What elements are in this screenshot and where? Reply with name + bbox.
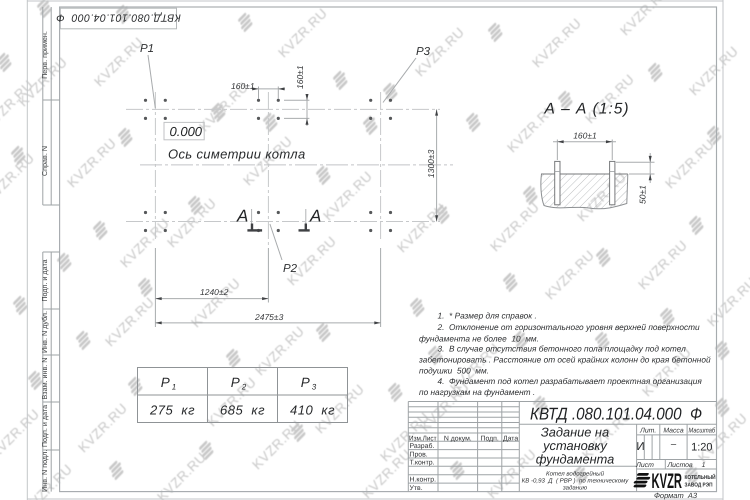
svg-text:по нагрузкам на фундамент .: по нагрузкам на фундамент . [419,387,535,397]
svg-text:ЗАВОД РЭП: ЗАВОД РЭП [685,483,713,489]
svg-text:Изм.Лист: Изм.Лист [409,435,437,442]
svg-text:KVZR.RU: KVZR.RU [102,294,157,349]
svg-text:KVZR.RU: KVZR.RU [284,233,339,288]
svg-text:KVZR.RU: KVZR.RU [91,34,146,89]
svg-text:KVZR.RU: KVZR.RU [704,274,750,329]
svg-text:Справ. N: Справ. N [40,146,49,176]
svg-text:160±1: 160±1 [573,131,597,141]
svg-text:P1: P1 [140,43,154,55]
svg-text:KVZR.RU: KVZR.RU [275,5,330,60]
svg-text:KVZR: KVZR [652,470,683,493]
svg-text:Т.контр.: Т.контр. [410,460,435,467]
svg-text:А: А [236,207,248,226]
svg-text:KVZR.RU: KVZR.RU [617,0,672,38]
svg-text:Инв. N дубл.: Инв. N дубл. [40,311,49,353]
svg-text:1300±3: 1300±3 [426,149,436,178]
svg-text:KVZR.RU: KVZR.RU [0,77,36,132]
svg-text:Перв. примен.: Перв. примен. [40,31,49,79]
svg-text:KVZR.RU: KVZR.RU [154,449,209,500]
svg-text:Взам. инв. N: Взам. инв. N [40,357,49,399]
svg-text:фундамента: фундамента [536,452,615,467]
svg-text:КВТД .080.101.04.000 Ф: КВТД .080.101.04.000 Ф [530,405,702,424]
svg-text:50±1: 50±1 [638,185,648,204]
svg-text:Ось симетрии котла: Ось симетрии котла [168,147,306,162]
svg-text:KVZR.RU: KVZR.RU [117,215,172,270]
svg-text:160±1: 160±1 [295,65,305,89]
svg-text:KVZR.RU: KVZR.RU [542,247,597,302]
svg-text:Разраб.: Разраб. [410,442,435,450]
svg-text:Подп. и дата: Подп. и дата [40,405,49,447]
svg-text:Подп.: Подп. [481,435,499,442]
svg-text:KVZR.RU: KVZR.RU [686,43,741,98]
svg-text:Н.контр.: Н.контр. [410,477,437,484]
svg-text:А – А (1:5): А – А (1:5) [543,101,629,118]
svg-text:3. В случае отсутствия бетонн: 3. В случае отсутствия бетонного пола пл… [438,344,687,354]
svg-text:1:20: 1:20 [691,442,712,454]
svg-text:1. * Размер для справок .: 1. * Размер для справок . [438,311,537,321]
svg-text:KVZR.RU: KVZR.RU [582,71,637,126]
svg-text:KVZR.RU: KVZR.RU [529,15,584,70]
svg-text:А: А [309,207,321,226]
svg-text:KVZR.RU: KVZR.RU [188,275,243,330]
svg-text:410 кг: 410 кг [290,403,335,418]
svg-text:Масса: Масса [663,427,684,434]
svg-text:–: – [671,439,677,450]
svg-text:0.000: 0.000 [170,124,203,139]
svg-text:Пров.: Пров. [410,451,428,458]
svg-text:P3: P3 [416,46,431,58]
svg-text:KVZR.RU: KVZR.RU [662,136,717,191]
svg-text:Формат А3: Формат А3 [654,491,698,500]
svg-text:Лист: Лист [635,462,654,469]
svg-text:KVZR.RU: KVZR.RU [164,195,219,250]
svg-text:заданию: заданию [562,484,588,491]
svg-text:подушки 500 мм.: подушки 500 мм. [419,366,489,376]
svg-text:Утв.: Утв. [410,485,423,492]
svg-text:N докум.: N докум. [444,435,472,442]
svg-text:Лит.: Лит. [639,427,656,434]
svg-text:4. Фундамент под котел разраб: 4. Фундамент под котел разрабатывает про… [438,376,703,386]
svg-text:И: И [636,441,644,453]
svg-text:KVZR.RU: KVZR.RU [64,135,119,190]
svg-text:Дата: Дата [503,435,518,442]
svg-text:Листов: Листов [666,462,692,469]
svg-text:Инв. N подл.: Инв. N подл. [40,450,49,492]
svg-text:КОТЕЛЬНЫЙ: КОТЕЛЬНЫЙ [685,473,716,481]
svg-text:Подп. и дата: Подп. и дата [40,259,49,301]
svg-text:685 кг: 685 кг [220,403,265,418]
svg-text:2475±3: 2475±3 [254,312,284,322]
svg-text:Масштаб: Масштаб [689,426,716,434]
svg-text:Котел водогрейный: Котел водогрейный [546,471,605,478]
svg-text:забетонировать . Расстояние от: забетонировать . Расстояние от осей край… [418,355,711,365]
svg-text:KVZR.RU: KVZR.RU [252,323,307,378]
svg-text:1: 1 [702,462,706,469]
svg-text:1240±2: 1240±2 [200,287,229,297]
svg-text:Р3: Р3 [301,375,317,392]
svg-text:КВТД.080.101.04.000 Ф: КВТД.080.101.04.000 Ф [56,11,181,23]
svg-text:2. Отклонение от горизонтальн: 2. Отклонение от горизонтального уровня … [437,322,701,332]
svg-text:P2: P2 [283,263,298,275]
svg-text:Р1: Р1 [161,375,176,392]
svg-text:KVZR.RU: KVZR.RU [75,400,130,455]
svg-text:160±1: 160±1 [231,81,255,91]
svg-text:KVZR.RU: KVZR.RU [0,406,42,461]
svg-text:фундамента не более 10 мм.: фундамента не более 10 мм. [419,334,539,344]
svg-text:KVZR.RU: KVZR.RU [487,199,542,254]
svg-text:KVZR.RU: KVZR.RU [635,237,690,292]
svg-text:275 кг: 275 кг [149,403,195,418]
